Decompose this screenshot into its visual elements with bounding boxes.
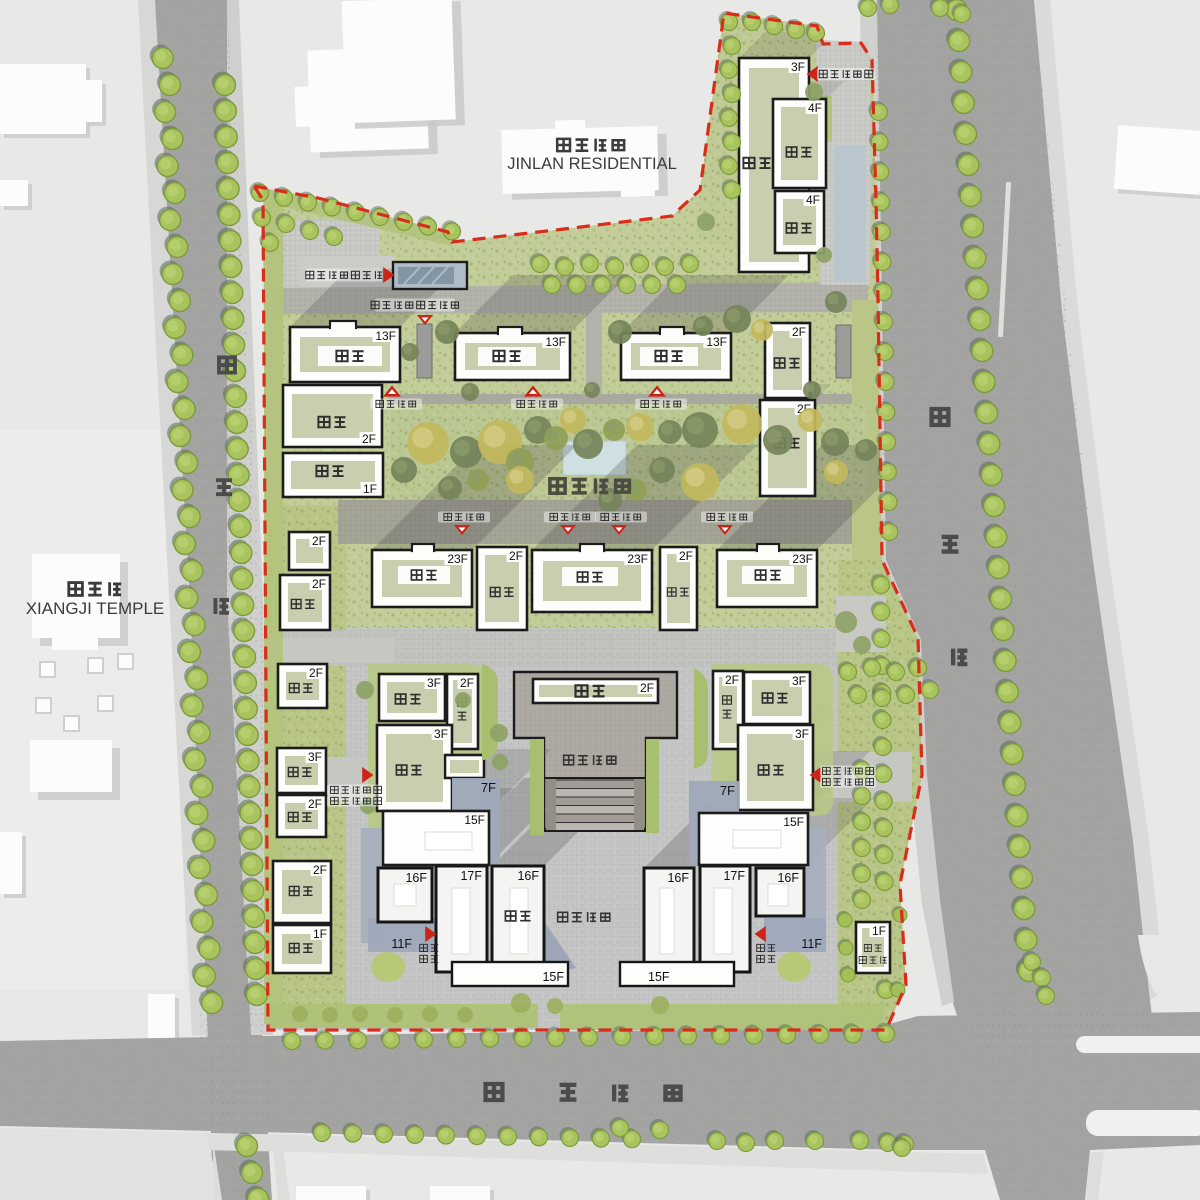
svg-text:17F: 17F [723, 869, 745, 883]
svg-text:3F: 3F [427, 676, 441, 690]
svg-text:2F: 2F [792, 325, 806, 339]
svg-text:2F: 2F [509, 549, 523, 563]
svg-text:23F: 23F [447, 552, 468, 566]
svg-text:4F: 4F [806, 193, 820, 207]
svg-text:23F: 23F [792, 552, 813, 566]
svg-text:2F: 2F [460, 676, 474, 690]
svg-text:17F: 17F [460, 869, 482, 883]
svg-text:3F: 3F [791, 60, 805, 74]
svg-text:16F: 16F [667, 871, 689, 885]
svg-text:16F: 16F [405, 871, 427, 885]
svg-text:3F: 3F [308, 750, 322, 764]
svg-text:1F: 1F [872, 924, 886, 938]
svg-text:2F: 2F [640, 681, 654, 695]
svg-text:15F: 15F [783, 815, 804, 829]
svg-text:4F: 4F [808, 101, 822, 115]
svg-text:23F: 23F [627, 552, 648, 566]
svg-text:2F: 2F [679, 549, 693, 563]
svg-text:13F: 13F [545, 335, 566, 349]
svg-text:11F: 11F [391, 937, 412, 951]
svg-text:15F: 15F [648, 970, 670, 984]
svg-text:1F: 1F [363, 482, 377, 496]
svg-text:13F: 13F [706, 335, 727, 349]
svg-text:JINLAN RESIDENTIAL: JINLAN RESIDENTIAL [507, 155, 677, 173]
svg-text:3F: 3F [792, 674, 806, 688]
svg-text:2F: 2F [308, 797, 322, 811]
svg-text:XIANGJI TEMPLE: XIANGJI TEMPLE [26, 599, 165, 618]
svg-text:7F: 7F [481, 780, 496, 795]
svg-text:2F: 2F [312, 577, 326, 591]
svg-text:2F: 2F [362, 432, 376, 446]
svg-text:2F: 2F [725, 673, 739, 687]
svg-text:1F: 1F [313, 927, 327, 941]
svg-text:2F: 2F [309, 666, 323, 680]
svg-text:11F: 11F [801, 937, 822, 951]
svg-text:2F: 2F [313, 863, 327, 877]
svg-text:15F: 15F [542, 970, 564, 984]
svg-text:13F: 13F [375, 329, 396, 343]
svg-text:15F: 15F [464, 813, 485, 827]
svg-text:16F: 16F [777, 871, 799, 885]
svg-text:16F: 16F [517, 869, 539, 883]
svg-text:2F: 2F [312, 534, 326, 548]
svg-text:3F: 3F [795, 727, 809, 741]
svg-text:7F: 7F [720, 783, 735, 798]
svg-text:3F: 3F [434, 727, 448, 741]
